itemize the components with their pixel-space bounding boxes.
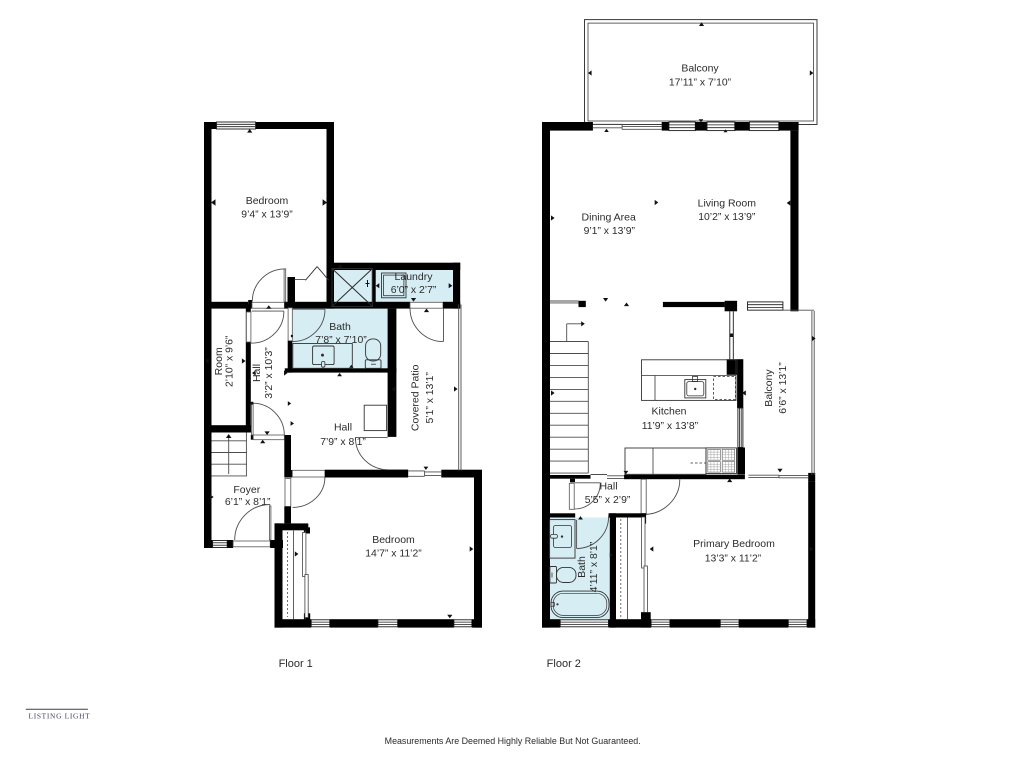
svg-text:4’11” x 8’1”: 4’11” x 8’1” [589,541,600,592]
svg-text:9’1” x 13’9”: 9’1” x 13’9” [584,226,636,237]
svg-text:Living Room: Living Room [698,197,757,209]
svg-text:Bedroom: Bedroom [372,534,415,546]
svg-text:Hall: Hall [334,422,352,434]
svg-text:2’10” x 9’6”: 2’10” x 9’6” [225,335,236,387]
svg-text:3’2” x 10’3”: 3’2” x 10’3” [264,347,275,399]
svg-text:13’3” x 11’2”: 13’3” x 11’2” [705,554,762,565]
svg-text:Kitchen: Kitchen [651,405,686,417]
svg-text:11’9” x 13’8”: 11’9” x 13’8” [642,421,699,432]
svg-text:Floor 2: Floor 2 [547,658,581,670]
svg-text:9’4” x 13’9”: 9’4” x 13’9” [241,210,293,221]
svg-text:Foyer: Foyer [233,484,260,496]
svg-text:10’2” x 13’9”: 10’2” x 13’9” [698,212,756,223]
svg-text:Covered Patio: Covered Patio [409,364,421,431]
svg-text:Room: Room [213,347,225,375]
svg-text:Bath: Bath [576,556,588,578]
svg-text:5’1” x 13’1”: 5’1” x 13’1” [425,372,436,424]
svg-text:LISTING LIGHT: LISTING LIGHT [29,712,91,721]
svg-text:Balcony: Balcony [681,63,719,75]
svg-text:6’1” x 8’1”: 6’1” x 8’1” [225,497,271,508]
svg-text:14’7” x 11’2”: 14’7” x 11’2” [365,549,422,560]
svg-text:7’8” x 7’10”: 7’8” x 7’10” [315,335,367,346]
svg-text:Hall: Hall [251,364,263,382]
svg-text:Hall: Hall [599,481,617,493]
svg-text:Balcony: Balcony [763,369,775,407]
svg-text:Bedroom: Bedroom [246,195,289,207]
svg-text:Measurements Are Deemed Highly: Measurements Are Deemed Highly Reliable … [385,736,641,746]
svg-text:5’5” x 2’9”: 5’5” x 2’9” [585,495,631,506]
svg-text:Primary Bedroom: Primary Bedroom [693,538,775,550]
svg-text:Bath: Bath [329,321,351,333]
svg-text:Floor 1: Floor 1 [279,658,313,670]
svg-text:Dining Area: Dining Area [582,212,636,224]
svg-text:17’11” x 7’10”: 17’11” x 7’10” [669,78,732,89]
svg-text:7’9” x 8’1”: 7’9” x 8’1” [320,437,366,448]
svg-text:Laundry: Laundry [395,271,434,283]
svg-text:6’6” x 13’1”: 6’6” x 13’1” [778,362,789,414]
svg-text:6’0” x 2’7”: 6’0” x 2’7” [391,285,437,296]
